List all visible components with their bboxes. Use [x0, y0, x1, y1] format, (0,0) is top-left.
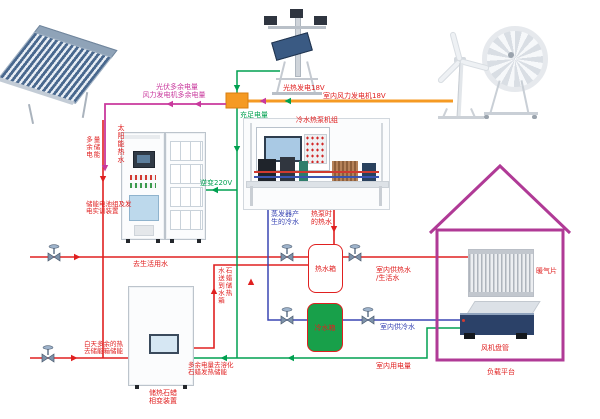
arrow-down: [234, 146, 240, 153]
indoor-hot-water-label: 室内供热水 /生活水: [376, 266, 411, 282]
wind-turbine-set: [420, 8, 570, 136]
solar-collector: [8, 26, 112, 126]
indoor-wind-gen-label: 室内风力发电机18V: [323, 92, 386, 100]
house-roof: [430, 166, 570, 233]
arrow-left: [195, 101, 202, 107]
valve-icon: [281, 245, 293, 261]
valve-icon: [281, 308, 293, 324]
to-domestic-water-label: 去生活用水: [133, 260, 168, 268]
evaporator-cold-label: 蒸发器产 生的冷水: [271, 210, 299, 226]
indoor-cold-water-label: 室内供冷水: [380, 323, 415, 331]
wind-fan-shroud: [482, 26, 548, 92]
valve-icon: [349, 245, 361, 261]
cold-water-tank: 冷水箱: [307, 303, 343, 352]
chiller-unit-label: 冷水热泵机组: [296, 116, 338, 124]
arrow-down: [331, 226, 337, 233]
solar-thermal-gen-label: 光热发电18V: [283, 84, 325, 92]
arrow-down: [234, 85, 240, 92]
excess-storage-label: 多余电 量储能: [85, 136, 99, 159]
paraffin-storage-cabinet: [128, 286, 194, 386]
radiator-label: 暖气片: [536, 267, 557, 275]
sufficient-power-label: 充足电量: [240, 111, 268, 119]
arrow-left: [212, 187, 219, 193]
system-diagram: 热水箱 冷水箱 光伏多余电量 风力发电机多余电量 光热发电18V 室内风力发电机…: [0, 0, 600, 419]
arrow-right: [71, 355, 78, 361]
cold-water-tank-label: 冷水箱: [315, 323, 336, 333]
radiator: [468, 249, 534, 297]
pv-excess-label-line2: 风力发电机多余电量: [140, 91, 208, 99]
hot-water-tank-label: 热水箱: [315, 264, 336, 274]
arrow-up: [248, 279, 254, 286]
excess-melt-label: 多余电量去溶化 石蜡发热储能: [188, 362, 234, 377]
chiller-heatpump-bench: [243, 118, 390, 210]
fan-coil-unit: [460, 301, 538, 341]
solar-hot-water-label: 太阳能热水: [117, 124, 124, 164]
fan-coil-label: 风机盘管: [481, 344, 509, 352]
indoor-power-label: 室内用电量: [376, 362, 411, 370]
arrow-right: [74, 254, 81, 260]
heatpump-hot-label: 热泵时 的热水: [311, 210, 332, 226]
battery-control-cabinet: [121, 132, 165, 240]
paraffin-to-tank-line: [192, 265, 309, 348]
valve-icon: [42, 346, 54, 362]
valve-icon: [362, 308, 374, 324]
hot-water-tank: 热水箱: [308, 244, 343, 293]
inverter-label: 逆变220V: [200, 179, 232, 187]
battery-device-label: 储能电池组及发 电实训装置: [86, 201, 132, 216]
paraffin-device-label: 储热石蜡 相变装置: [149, 389, 177, 405]
power-junction-box: [226, 93, 248, 108]
arrow-left: [288, 355, 295, 361]
arrow-left: [167, 101, 174, 107]
valve-icon: [48, 245, 60, 261]
pv-excess-label-line1: 光伏多余电量: [148, 83, 206, 91]
day-excess-heat-label: 白天多余的热 去储能箱储能: [84, 341, 123, 356]
load-platform-label: 负载平台: [487, 368, 515, 376]
arrow-down: [100, 176, 106, 183]
paraffin-to-tank-label: 水送到水箱 石蜡储热: [217, 267, 231, 305]
